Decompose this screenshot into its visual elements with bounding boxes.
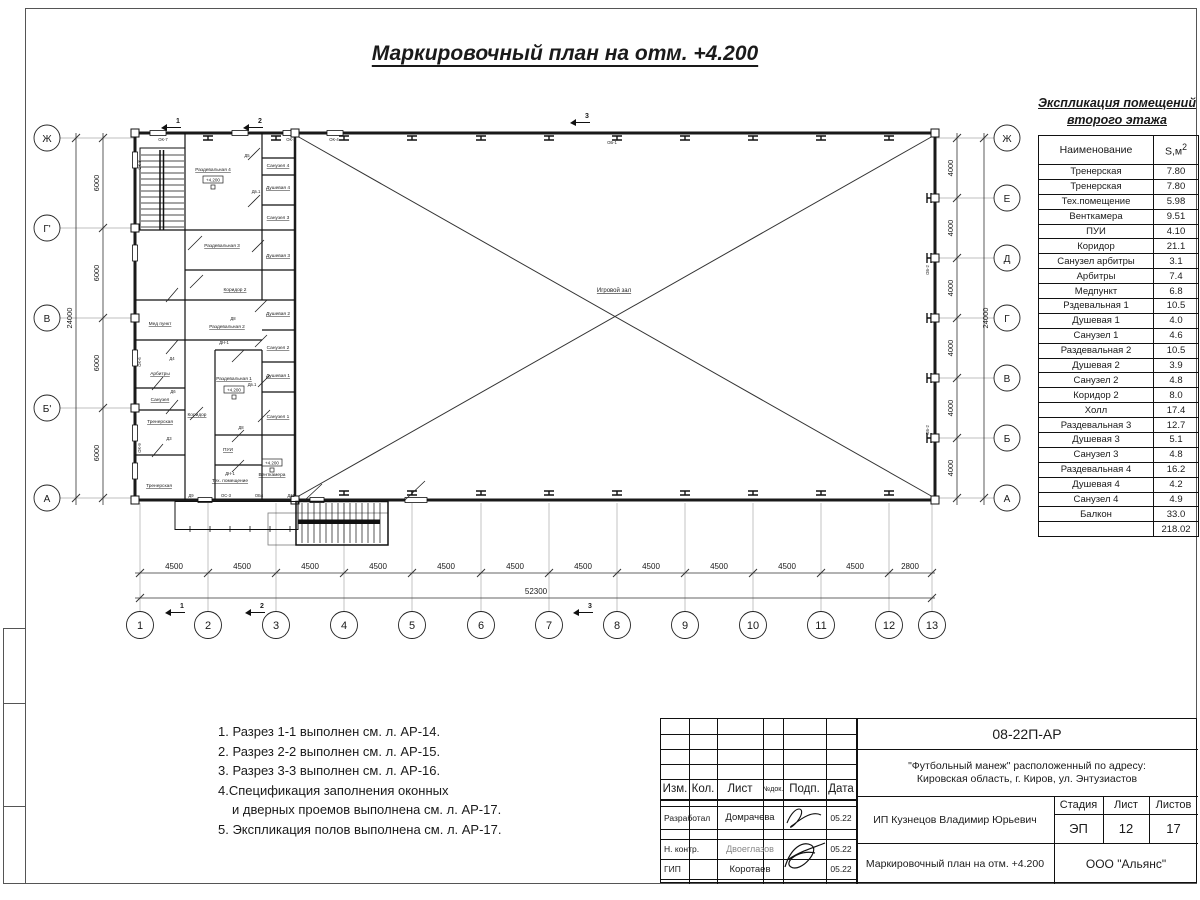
explication-table: Экспликация помещений второго этажа Наим… xyxy=(1038,95,1196,537)
axis-bubble: А xyxy=(1004,494,1011,505)
stage-label: Стадия xyxy=(1054,796,1103,814)
sheet-label: Лист xyxy=(1103,796,1149,814)
table-row: Душевая 44.2 xyxy=(1039,477,1199,492)
section-mark: 3 xyxy=(585,113,589,120)
axis-bubble: 6 xyxy=(478,620,484,632)
table-row: Санузел 34.8 xyxy=(1039,447,1199,462)
col-header-podp: Подп. xyxy=(783,779,826,799)
room-label: Тренерская xyxy=(146,483,172,489)
opening-mark: ОБ-1 xyxy=(607,140,617,145)
elevation-mark: +4.200 xyxy=(227,388,241,393)
door-code: Д4 xyxy=(169,356,175,361)
opening-mark: ОБ-2 xyxy=(925,264,930,274)
door-code: Д5 xyxy=(244,153,250,158)
doc-number: 08-22П-АР xyxy=(856,719,1198,749)
table-row: Рздевальная 110.5 xyxy=(1039,299,1199,314)
note-line: 1. Разрез 1-1 выполнен см. л. АР-14. xyxy=(218,722,502,742)
table-header-row: Наименование S,м2 xyxy=(1039,136,1199,165)
opening-mark: ОБ-2 xyxy=(925,424,930,434)
door-code: Д3 xyxy=(166,436,172,441)
room-label: Раздевальная 3 xyxy=(204,243,240,249)
opening-mark: ОК-8 xyxy=(137,160,142,170)
dim-label: 4500 xyxy=(574,562,592,571)
table-row: Душевая 14.0 xyxy=(1039,313,1199,328)
hall-label: Игровой зал xyxy=(597,287,632,294)
opening-mark: ОК-7 xyxy=(158,137,168,142)
room-label: ПУИ xyxy=(223,447,233,453)
room-label: Тренерская xyxy=(147,419,173,425)
signature xyxy=(781,801,827,881)
door-code: ДН-1 xyxy=(219,340,229,345)
role-gip: ГИП xyxy=(662,859,718,879)
table-row: Тренерская7.80 xyxy=(1039,165,1199,180)
sheets-label: Листов xyxy=(1149,796,1198,814)
table-row: Тренерская7.80 xyxy=(1039,179,1199,194)
room-label: Санузел 2 xyxy=(267,345,290,351)
axis-circles-right: Ж Е Д Г В Б А xyxy=(994,125,1020,511)
name-gip: Коротаев xyxy=(717,859,783,879)
axis-bubble: А xyxy=(44,494,51,505)
table-row: ПУИ4.10 xyxy=(1039,224,1199,239)
note-line: 4.Спецификация заполнения оконных xyxy=(218,781,502,801)
column-marks xyxy=(203,136,931,495)
axis-bubble: 4 xyxy=(341,620,347,632)
dim-total: 52300 xyxy=(525,587,548,596)
table-row: Балкон33.0 xyxy=(1039,507,1199,522)
room-label: Венткамера xyxy=(259,472,286,478)
dim-label: 4500 xyxy=(233,562,251,571)
dim-label: 4500 xyxy=(506,562,524,571)
door-code: Д6 xyxy=(170,389,176,394)
door-code: Д8 xyxy=(238,425,244,430)
table-row: Арбитры7.4 xyxy=(1039,269,1199,284)
dim-label: 4000 xyxy=(946,160,955,177)
axis-bubble: Д xyxy=(1004,254,1011,265)
door-code: Дв.1 xyxy=(248,382,257,387)
opening-mark: ОС-3 xyxy=(221,493,232,498)
axis-bubble: Б xyxy=(1004,434,1011,445)
room-label: Душевая 4 xyxy=(266,185,290,191)
dim-label: 4500 xyxy=(710,562,728,571)
dimension-left: 6000 6000 6000 6000 24000 xyxy=(65,133,107,505)
section-mark: 2 xyxy=(258,118,262,125)
project-address-line2: Кировская область, г. Киров, ул. Энтузиа… xyxy=(917,773,1137,786)
name-developed: Домрачева xyxy=(717,806,783,829)
door-code: ДН-1 xyxy=(225,471,235,476)
opening-mark: ОК-4 xyxy=(329,137,339,142)
room-label: Санузел xyxy=(151,397,170,403)
axis-bubble: Б' xyxy=(43,404,52,415)
axis-bubble: 2 xyxy=(205,620,211,632)
table-row: Тех.помещение5.98 xyxy=(1039,194,1199,209)
dim-label: 4000 xyxy=(946,460,955,477)
dim-label: 4000 xyxy=(946,340,955,357)
col-header-ndok: №док. xyxy=(763,779,783,799)
table-row: Раздевальная 416.2 xyxy=(1039,462,1199,477)
axis-leader-lines xyxy=(60,138,994,611)
dim-label: 4500 xyxy=(301,562,319,571)
note-line: 2. Разрез 2-2 выполнен см. л. АР-15. xyxy=(218,742,502,762)
table-row: Медпункт6.8 xyxy=(1039,284,1199,299)
axis-bubble: 9 xyxy=(682,620,688,632)
dim-label: 4000 xyxy=(946,400,955,417)
dim-label: 6000 xyxy=(92,355,101,372)
notes: 1. Разрез 1-1 выполнен см. л. АР-14. 2. … xyxy=(218,722,502,839)
axis-bubble: Г' xyxy=(43,224,50,235)
room-label: Коридор xyxy=(188,412,207,418)
table-row: Душевая 35.1 xyxy=(1039,433,1199,448)
stair-external xyxy=(268,502,388,546)
table-row: Санузел 44.9 xyxy=(1039,492,1199,507)
axis-bubble: Г xyxy=(1004,314,1010,325)
dim-label: 4000 xyxy=(946,220,955,237)
elevation-mark: +4.200 xyxy=(265,461,279,466)
room-label: Санузел 3 xyxy=(267,215,290,221)
door-code: Дв.1 xyxy=(252,189,261,194)
floor-plan: Игровой зал Раздевальная 4 Санузел 4 Душ… xyxy=(0,0,1040,670)
dimension-bottom: 4500 4500 4500 4500 4500 4500 4500 4500 … xyxy=(135,562,936,602)
table-row: Венткамера9.51 xyxy=(1039,209,1199,224)
room-label: Санузел 1 xyxy=(267,414,290,420)
opening-mark: ОК-6 xyxy=(137,357,142,367)
stair-internal xyxy=(140,148,185,230)
dimension-right: 4000 4000 4000 4000 4000 4000 24000 xyxy=(946,133,990,505)
col-header-data: Дата xyxy=(826,779,856,799)
col-header-izm: Изм. xyxy=(661,779,689,799)
explication-title: Экспликация помещений второго этажа xyxy=(1038,95,1196,129)
section-mark: 3 xyxy=(588,603,592,610)
axis-bubble: В xyxy=(1004,374,1011,385)
room-label: Раздевальная 2 xyxy=(209,324,245,330)
note-line: 3. Разрез 3-3 выполнен см. л. АР-16. xyxy=(218,761,502,781)
room-label: Коридор 2 xyxy=(224,287,247,293)
table-row: Коридор 28.0 xyxy=(1039,388,1199,403)
room-label: Тех. помещение xyxy=(212,478,248,484)
table-row: Душевая 23.9 xyxy=(1039,358,1199,373)
stage-value: ЭП xyxy=(1054,814,1103,843)
table-row: Холл17.4 xyxy=(1039,403,1199,418)
opening-mark: Д9 xyxy=(188,493,194,498)
table-row: Санузел 24.8 xyxy=(1039,373,1199,388)
dim-total: 24000 xyxy=(981,308,990,329)
section-mark: 1 xyxy=(180,603,184,610)
elevation-mark: +4.200 xyxy=(206,178,220,183)
dim-label: 4500 xyxy=(846,562,864,571)
axis-bubble: 12 xyxy=(883,620,895,632)
table-row: Санузел арбитры3.1 xyxy=(1039,254,1199,269)
dim-label: 2800 xyxy=(901,562,919,571)
axis-bubble: 1 xyxy=(137,620,143,632)
note-line: 5. Экспликация полов выполнена см. л. АР… xyxy=(218,820,502,840)
dim-label: 4500 xyxy=(165,562,183,571)
floor-plan-walls xyxy=(131,129,939,504)
title-block: Изм. Кол. Лист №док. Подп. Дата Разработ… xyxy=(660,718,1197,883)
dim-label: 4500 xyxy=(642,562,660,571)
explication-title-line2: второго этажа xyxy=(1038,112,1196,129)
name-ncontrol: Двоеглазов xyxy=(717,839,783,859)
drawing-title: Маркировочный план на отм. +4.200 xyxy=(856,843,1054,884)
total-area: 218.02 xyxy=(1154,522,1199,537)
dim-label: 4000 xyxy=(946,280,955,297)
section-mark: 2 xyxy=(260,603,264,610)
dim-total: 24000 xyxy=(65,308,74,329)
section-markers: 1 2 3 1 2 3 xyxy=(161,113,593,616)
date-ncontrol: 05.22 xyxy=(826,839,856,859)
axis-bubble: 11 xyxy=(815,620,826,632)
project-address-line1: "Футбольный манеж" расположенный по адре… xyxy=(908,760,1146,773)
col-name-header: Наименование xyxy=(1039,136,1154,165)
table-total-row: 218.02 xyxy=(1039,522,1199,537)
table-row: Коридор21.1 xyxy=(1039,239,1199,254)
table-row: Санузел 14.6 xyxy=(1039,328,1199,343)
room-label: Душевая 1 xyxy=(266,373,290,379)
room-label: Мед пункт xyxy=(149,321,173,327)
room-label: Арбитры xyxy=(150,371,170,377)
balcony xyxy=(175,502,298,533)
col-area-header: S,м2 xyxy=(1154,136,1199,165)
room-label: Душевая 2 xyxy=(266,311,290,317)
opening-mark: Д11 xyxy=(287,493,295,498)
sheets-value: 17 xyxy=(1149,814,1198,843)
role-ncontrol: Н. контр. xyxy=(662,839,718,859)
room-label: Душевая 3 xyxy=(266,253,290,259)
client-name: ИП Кузнецов Владимир Юрьевич xyxy=(856,796,1054,843)
section-mark: 1 xyxy=(176,118,180,125)
axis-bubble: В xyxy=(44,314,51,325)
axis-circles-bottom: 1 2 3 4 5 6 7 8 9 10 11 12 13 xyxy=(127,612,946,639)
axis-bubble: Е xyxy=(1004,194,1011,205)
col-header-list: Лист xyxy=(717,779,763,799)
axis-bubble: 13 xyxy=(926,620,938,632)
note-line: и дверных проемов выполнена см. л. АР-17… xyxy=(218,800,502,820)
opening-mark: ОК-3 xyxy=(286,137,296,142)
room-label: Раздевальная 4 xyxy=(195,167,231,173)
door-code: Д8 xyxy=(230,316,236,321)
dim-label: 6000 xyxy=(92,445,101,462)
company-name: ООО "Альянс" xyxy=(1054,843,1198,884)
axis-bubble: 8 xyxy=(614,620,620,632)
door-codes: Д5 Дв.1 Д8 ДН-1 Д4 Д6 Д3 Дв.1 Д8 ДН-1 xyxy=(166,153,261,476)
date-developed: 05.22 xyxy=(826,806,856,829)
axis-bubble: Ж xyxy=(1002,134,1012,145)
dim-label: 4500 xyxy=(437,562,455,571)
date-gip: 05.22 xyxy=(826,859,856,879)
dim-label: 6000 xyxy=(92,175,101,192)
project-address: "Футбольный манеж" расположенный по адре… xyxy=(856,749,1198,796)
role-developed: Разработал xyxy=(662,806,718,829)
table-row: Раздевальная 210.5 xyxy=(1039,343,1199,358)
axis-bubble: 3 xyxy=(273,620,279,632)
axis-circles-left: Ж Г' В Б' А xyxy=(34,125,60,511)
table-row: Раздевальная 312.7 xyxy=(1039,418,1199,433)
axis-bubble: 5 xyxy=(409,620,415,632)
opening-mark: ОБ4 xyxy=(255,493,264,498)
sheet-value: 12 xyxy=(1103,814,1149,843)
room-label: Санузел 4 xyxy=(267,163,290,169)
dim-label: 4500 xyxy=(778,562,796,571)
axis-bubble: Ж xyxy=(42,134,52,145)
axis-bubble: 7 xyxy=(546,620,552,632)
col-header-kol: Кол. xyxy=(689,779,717,799)
axis-bubble: 10 xyxy=(747,620,759,632)
dim-label: 4500 xyxy=(369,562,387,571)
explication-title-line1: Экспликация помещений xyxy=(1038,95,1196,112)
opening-mark: ОК-9 xyxy=(137,443,142,453)
dim-label: 6000 xyxy=(92,265,101,282)
